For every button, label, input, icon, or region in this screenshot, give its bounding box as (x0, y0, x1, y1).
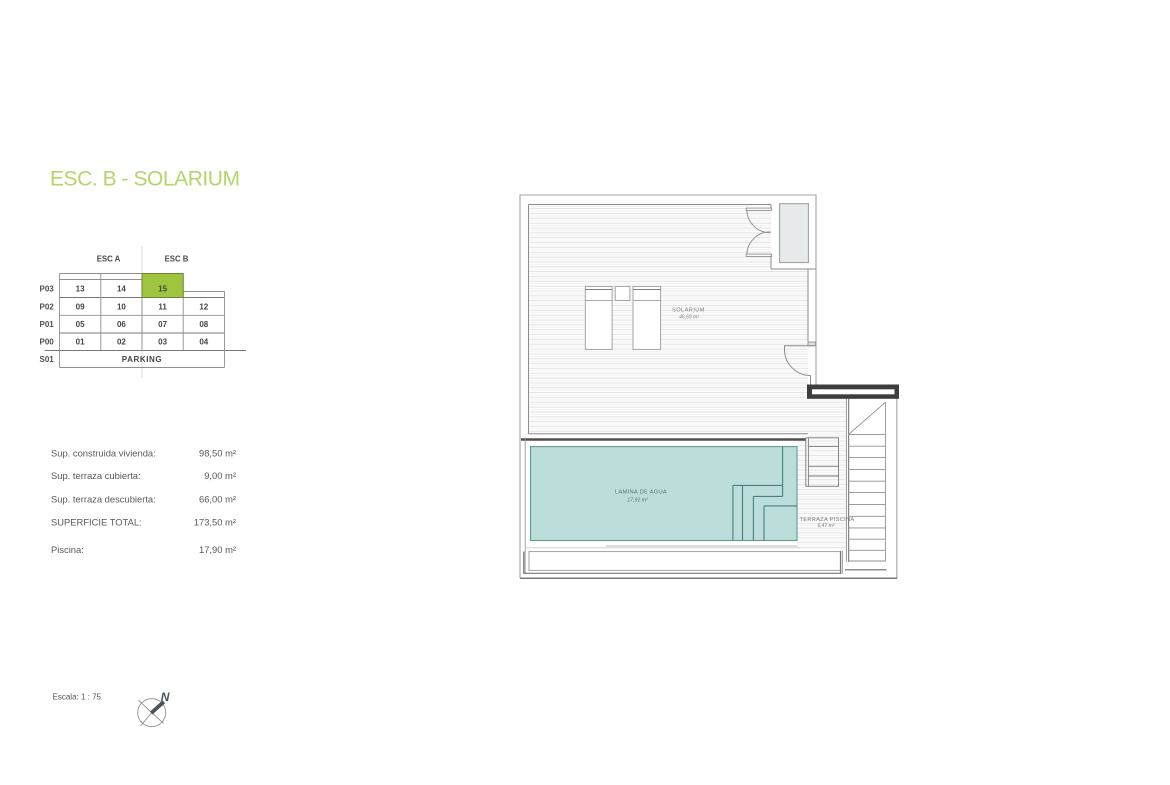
svg-text:P02: P02 (40, 302, 55, 311)
svg-text:ESC B: ESC B (165, 255, 189, 264)
svg-text:15: 15 (158, 284, 167, 293)
svg-text:ESC. B - SOLARIUM: ESC. B - SOLARIUM (50, 168, 240, 191)
svg-text:Sup. terraza cubierta:: Sup. terraza cubierta: (51, 470, 141, 481)
svg-text:11: 11 (158, 302, 167, 311)
svg-text:10: 10 (117, 302, 126, 311)
svg-text:13: 13 (76, 284, 85, 293)
svg-text:14: 14 (117, 284, 126, 293)
svg-text:06: 06 (117, 320, 126, 329)
svg-text:SOLARIUM: SOLARIUM (672, 308, 705, 314)
svg-text:9,00 m²: 9,00 m² (204, 470, 236, 481)
svg-text:66,00 m²: 66,00 m² (199, 494, 236, 505)
svg-text:04: 04 (199, 338, 208, 347)
svg-text:08: 08 (199, 320, 208, 329)
svg-text:03: 03 (158, 338, 167, 347)
svg-text:P01: P01 (40, 320, 55, 329)
svg-text:LAMINA DE AGUA: LAMINA DE AGUA (615, 490, 667, 496)
svg-text:173,50 m²: 173,50 m² (194, 517, 236, 528)
svg-text:N: N (161, 690, 170, 704)
svg-text:01: 01 (76, 338, 85, 347)
svg-text:6,47 m²: 6,47 m² (818, 523, 835, 529)
svg-text:Sup. construida vivienda:: Sup. construida vivienda: (51, 448, 156, 459)
svg-text:ESC A: ESC A (97, 255, 121, 264)
svg-text:Piscina:: Piscina: (51, 544, 84, 555)
svg-text:17,90 m²: 17,90 m² (199, 544, 236, 555)
svg-text:07: 07 (158, 320, 167, 329)
svg-text:Escala: 1 : 75: Escala: 1 : 75 (53, 693, 102, 702)
svg-text:98,50 m²: 98,50 m² (199, 448, 236, 459)
svg-text:12: 12 (199, 302, 208, 311)
svg-text:S01: S01 (40, 355, 55, 364)
svg-text:09: 09 (76, 302, 85, 311)
svg-text:PARKING: PARKING (122, 355, 163, 364)
svg-text:05: 05 (76, 320, 85, 329)
svg-text:P00: P00 (40, 338, 55, 347)
svg-text:Sup. terraza descubierta:: Sup. terraza descubierta: (51, 494, 156, 505)
svg-text:P03: P03 (40, 284, 55, 293)
svg-text:02: 02 (117, 338, 126, 347)
svg-text:17,91 m²: 17,91 m² (627, 497, 648, 503)
svg-text:SUPERFICIE TOTAL:: SUPERFICIE TOTAL: (51, 517, 142, 528)
svg-text:46,69 m²: 46,69 m² (679, 314, 699, 320)
